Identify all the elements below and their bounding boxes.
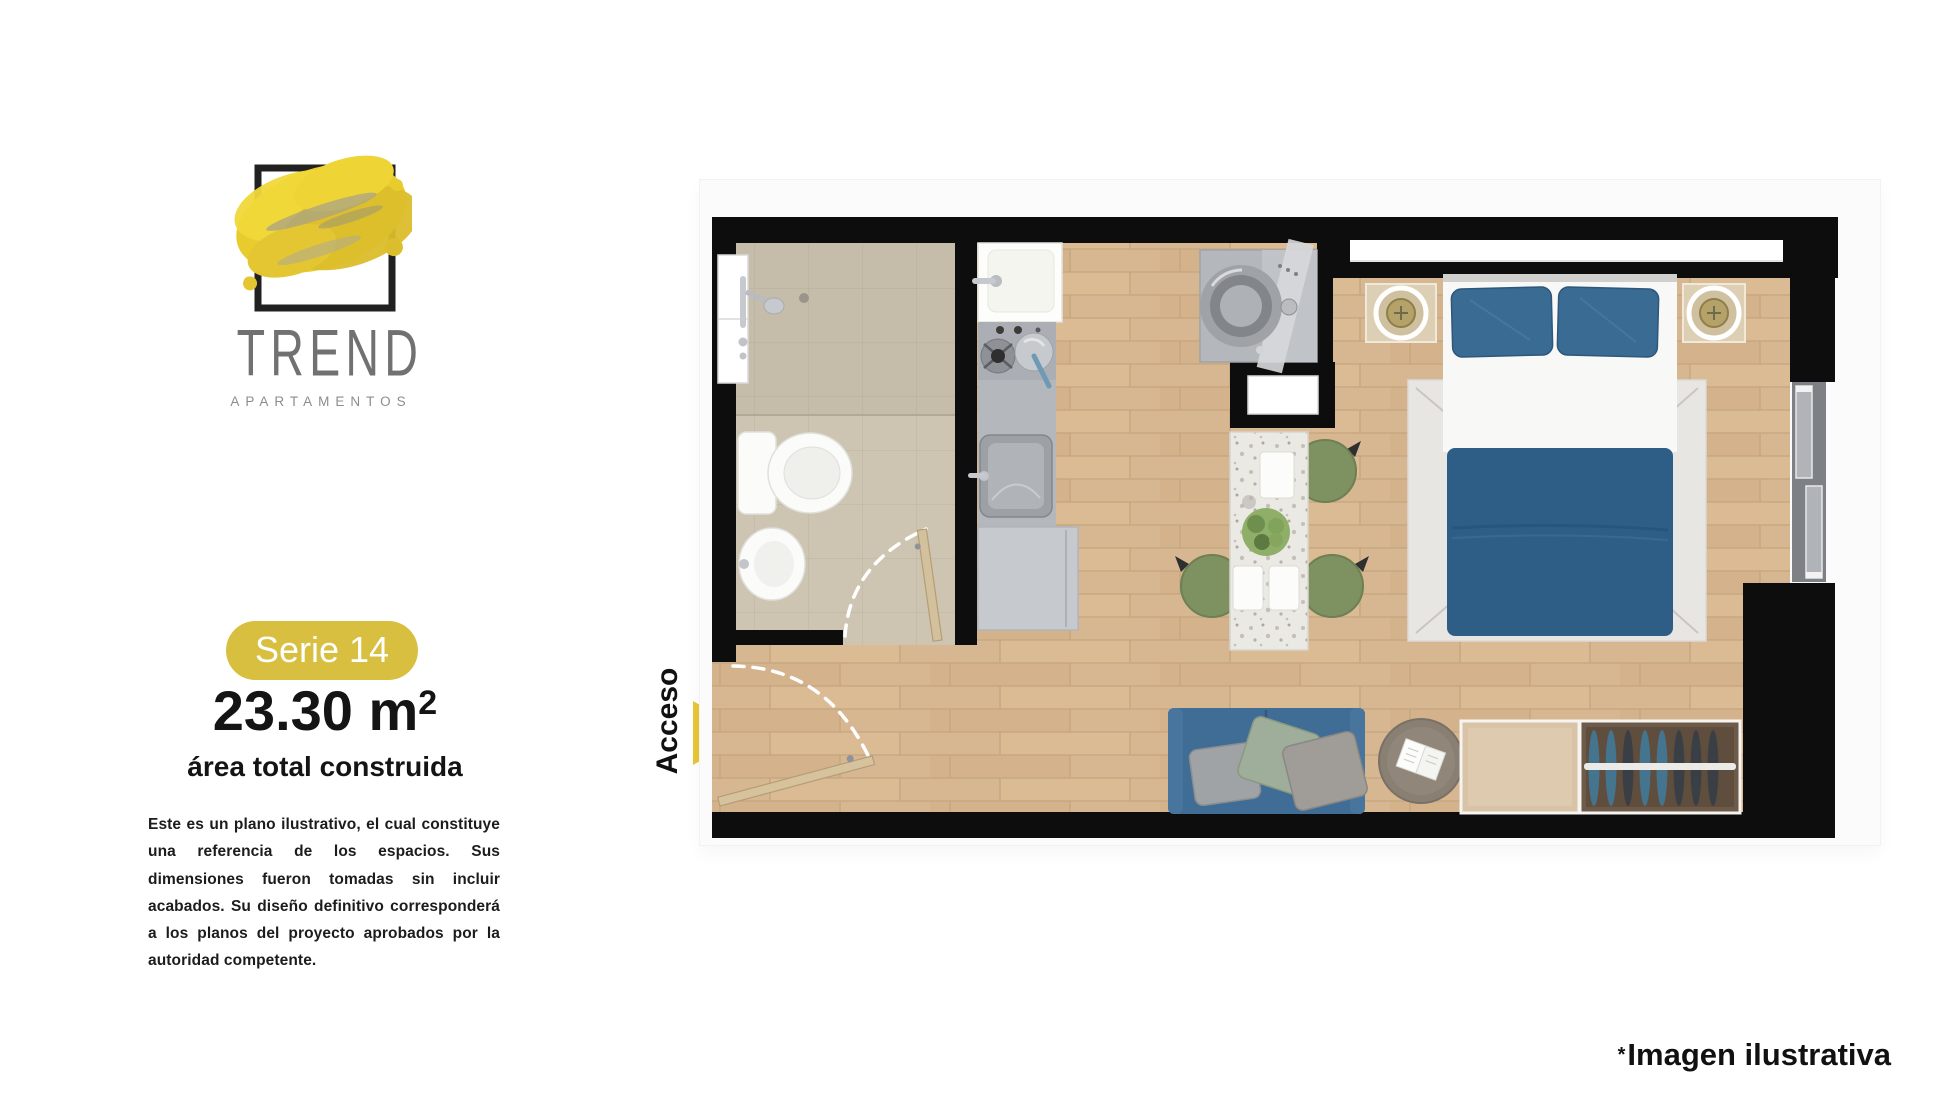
wall-laundry-nook [1317, 217, 1333, 362]
page: TREND APARTAMENTOS Serie 14 23.30 m2 áre… [0, 0, 1949, 1109]
headboard [1443, 274, 1677, 283]
bed [1443, 274, 1677, 636]
wall-bathroom-bottom [736, 630, 843, 645]
sofa [1168, 708, 1369, 814]
disclaimer-text: Este es un plano ilustrativo, el cual co… [148, 811, 500, 975]
wall-top [712, 217, 1338, 243]
shower-area [736, 243, 955, 415]
footnote: *Imagen ilustrativa [1618, 1037, 1891, 1073]
shower-drain [799, 293, 809, 303]
nightstand-left [1366, 284, 1436, 342]
footnote-text: Imagen ilustrativa [1627, 1037, 1891, 1072]
wall-right-block [1743, 583, 1835, 838]
wall-bathroom-kitchen [955, 243, 977, 645]
ottoman [1379, 719, 1463, 803]
duvet [1447, 448, 1673, 636]
floorplan-svg [700, 180, 1880, 845]
area-value: 23.30 m2 [140, 678, 510, 743]
floorplan-canvas [700, 180, 1880, 845]
brand-logo [222, 140, 412, 330]
wall-right-upper [1790, 217, 1835, 382]
plate [1233, 566, 1263, 610]
plate [1260, 452, 1294, 498]
washer-knob [1281, 299, 1297, 315]
kitchen-cabinet [978, 527, 1078, 630]
pass-window [1248, 376, 1318, 414]
area-caption: área total construida [110, 751, 540, 783]
toilet [738, 432, 852, 514]
area-superscript: 2 [418, 684, 437, 722]
brand-subtitle: APARTAMENTOS [208, 394, 434, 409]
sliding-door [1792, 382, 1826, 582]
plate [1269, 566, 1299, 610]
access-label: Acceso [651, 651, 689, 791]
area-number: 23.30 m [213, 679, 419, 742]
closet-rail [1584, 763, 1736, 770]
brand-wordmark: TREND [237, 316, 400, 391]
stove [978, 322, 1056, 386]
closet [1461, 721, 1740, 813]
washing-machine [1200, 239, 1317, 373]
series-badge: Serie 14 [226, 621, 418, 680]
utility-sink [968, 435, 1052, 517]
wall-bottom [712, 812, 1835, 838]
pillow-right [1557, 287, 1659, 358]
nightstand-right [1683, 284, 1745, 342]
bidet-sink [739, 528, 805, 600]
plant [1242, 508, 1290, 556]
footnote-star: * [1618, 1044, 1628, 1066]
bedroom-window [1350, 240, 1783, 262]
